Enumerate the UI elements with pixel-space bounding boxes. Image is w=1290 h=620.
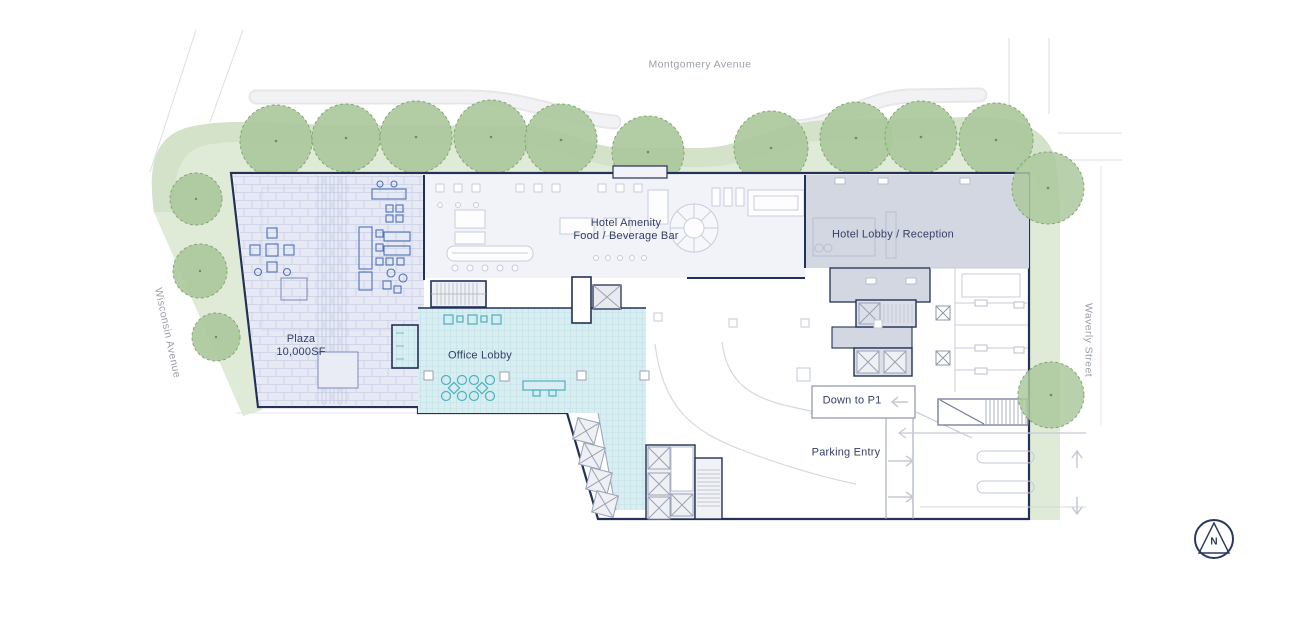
parking-ramp xyxy=(938,399,1028,425)
parking-entry-label: Parking Entry xyxy=(812,447,881,460)
office-entry-vestibule xyxy=(392,325,418,368)
core-stair-upper xyxy=(431,281,486,307)
lobby-elevator-block-b xyxy=(854,348,912,376)
street-label-waverly: Waverly Street xyxy=(1082,303,1095,377)
plaza-area xyxy=(233,175,424,406)
amenity-entry-vestibule xyxy=(613,166,667,178)
hotel-lobby-label: Hotel Lobby / Reception xyxy=(832,229,954,242)
street-label-montgomery: Montgomery Avenue xyxy=(649,59,752,72)
down-to-p1-label: Down to P1 xyxy=(823,395,882,408)
north-compass-letter: N xyxy=(1210,537,1217,548)
site-plan: Montgomery Avenue Wisconsin Avenue Waver… xyxy=(0,0,1290,620)
hotel-amenity-label-line2: Food / Beverage Bar xyxy=(573,230,678,243)
core-shaft xyxy=(572,277,591,323)
hotel-amenity-label-line1: Hotel Amenity xyxy=(573,217,678,230)
office-lobby-label: Office Lobby xyxy=(448,350,512,363)
plaza-label-name: Plaza xyxy=(276,333,325,346)
hotel-amenity-label: Hotel Amenity Food / Beverage Bar xyxy=(573,217,678,243)
core-elevator-upper xyxy=(593,285,621,309)
site-plan-drawing xyxy=(0,0,1290,620)
plaza-label-size: 10,000SF xyxy=(276,346,325,359)
plaza-label: Plaza 10,000SF xyxy=(276,333,325,359)
lobby-elevator-block-a xyxy=(856,300,916,327)
